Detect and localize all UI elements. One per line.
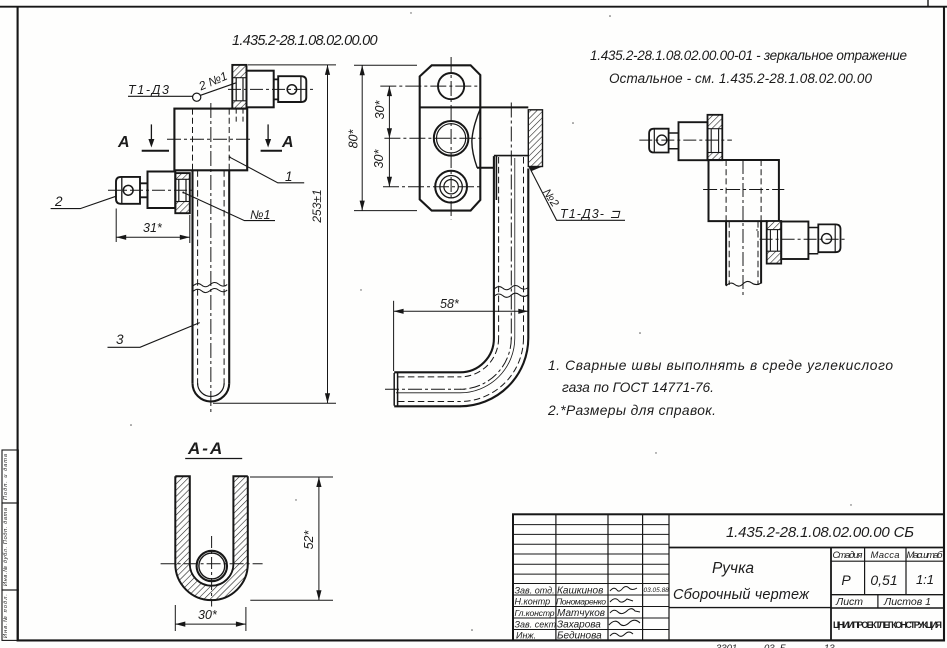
svg-text:2: 2: [54, 194, 63, 209]
svg-text:3301: 3301: [716, 643, 737, 648]
svg-text:1:1: 1:1: [916, 572, 934, 587]
svg-text:Остальное - см. 1.435.2-28: Остальное - см. 1.435.2-28.1.08.02.00.00: [609, 71, 872, 86]
svg-text:13: 13: [824, 643, 835, 648]
svg-text:Листов 1: Листов 1: [883, 596, 931, 608]
svg-text:3: 3: [116, 332, 124, 347]
svg-text:1.435.2-28.1.08.02.00.00-01 -: 1.435.2-28.1.08.02.00.00-01 - зеркальное…: [590, 48, 907, 63]
svg-text:Т1-Д3: Т1-Д3: [128, 83, 169, 97]
svg-text:ЦНИИПРОЕКТЛЕГКОНСТРУКЦИЯ: ЦНИИПРОЕКТЛЕГКОНСТРУКЦИЯ: [833, 620, 942, 630]
svg-text:газа по ГОСТ 14771-76.: газа по ГОСТ 14771-76.: [562, 380, 714, 395]
svg-text:Лист: Лист: [835, 596, 863, 608]
svg-text:253±1: 253±1: [310, 189, 324, 223]
svg-text:2.*Размеры для справок.: 2.*Размеры для справок.: [547, 403, 716, 418]
svg-text:А-А: А-А: [187, 439, 224, 458]
svg-text:Масштаб: Масштаб: [907, 550, 944, 561]
svg-text:№1: №1: [250, 208, 271, 222]
svg-text:Ручка: Ручка: [712, 560, 754, 577]
svg-text:Т1-Д3- ⊐: Т1-Д3- ⊐: [560, 207, 621, 221]
svg-text:30*: 30*: [373, 99, 387, 119]
svg-text:1. Сварные швы выполнять в: 1. Сварные швы выполнять в среде углекис…: [548, 358, 893, 373]
svg-text:Зав. отд.: Зав. отд.: [515, 586, 555, 596]
svg-text:80*: 80*: [347, 128, 361, 148]
svg-text:Кашкинов: Кашкинов: [557, 586, 603, 597]
svg-text:А: А: [281, 134, 294, 151]
svg-text:Р: Р: [841, 572, 851, 588]
svg-text:0,51: 0,51: [870, 572, 897, 588]
svg-text:Н.контр: Н.контр: [515, 597, 551, 607]
svg-text:Матчуков: Матчуков: [557, 608, 605, 619]
svg-text:03. Б: 03. Б: [764, 643, 786, 648]
svg-text:Инв.№ дубл. Подп. дата: Инв.№ дубл. Подп. дата: [3, 508, 9, 586]
svg-text:Масса: Масса: [871, 550, 900, 561]
svg-text:Захарова: Захарова: [557, 620, 601, 631]
svg-text:1.435.2-28.1.08.02.00.00 СБ: 1.435.2-28.1.08.02.00.00 СБ: [726, 524, 914, 541]
svg-text:1.435.2-28.1.08.02.00.00: 1.435.2-28.1.08.02.00.00: [232, 33, 378, 49]
svg-text:Бединова: Бединова: [557, 631, 602, 642]
svg-text:58*: 58*: [440, 297, 460, 311]
svg-text:30*: 30*: [372, 148, 386, 168]
svg-text:А: А: [117, 134, 130, 151]
svg-text:Зав. сект: Зав. сект: [515, 620, 557, 630]
svg-text:Гл.констр: Гл.констр: [515, 608, 555, 618]
svg-text:Сборочный чертеж: Сборочный чертеж: [673, 587, 810, 603]
svg-text:Пономаренко: Пономаренко: [556, 597, 606, 607]
svg-text:31*: 31*: [143, 221, 163, 235]
svg-text:1: 1: [285, 169, 293, 184]
svg-text:03.05.88: 03.05.88: [644, 587, 670, 594]
svg-text:Стадия: Стадия: [833, 550, 863, 561]
svg-text:30*: 30*: [198, 608, 218, 622]
svg-text:Подп. и дата: Подп. и дата: [3, 454, 9, 500]
svg-text:52*: 52*: [302, 529, 316, 549]
svg-text:Инж.: Инж.: [516, 631, 536, 641]
